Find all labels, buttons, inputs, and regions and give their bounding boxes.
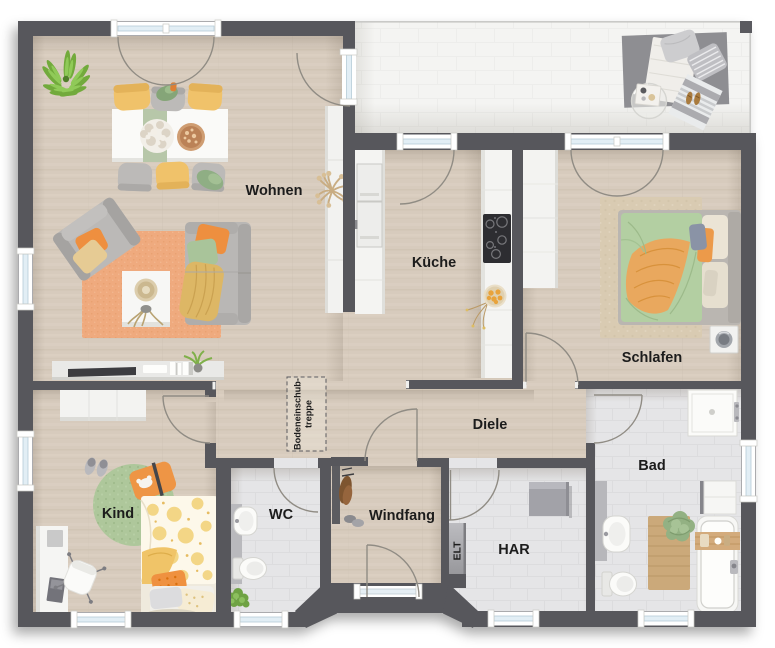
svg-text:Küche: Küche — [412, 255, 456, 271]
svg-text:WC: WC — [269, 507, 294, 523]
svg-text:Schlafen: Schlafen — [622, 350, 682, 366]
svg-text:Bad: Bad — [638, 458, 665, 474]
svg-text:Wohnen: Wohnen — [246, 183, 303, 199]
svg-text:treppe: treppe — [304, 400, 314, 428]
svg-text:Kind: Kind — [102, 506, 134, 522]
svg-text:Windfang: Windfang — [369, 508, 435, 524]
svg-text:ELT: ELT — [452, 541, 464, 561]
svg-text:Diele: Diele — [473, 417, 508, 433]
svg-text:HAR: HAR — [498, 542, 530, 558]
svg-text:Bodeneinschub-: Bodeneinschub- — [293, 378, 303, 450]
